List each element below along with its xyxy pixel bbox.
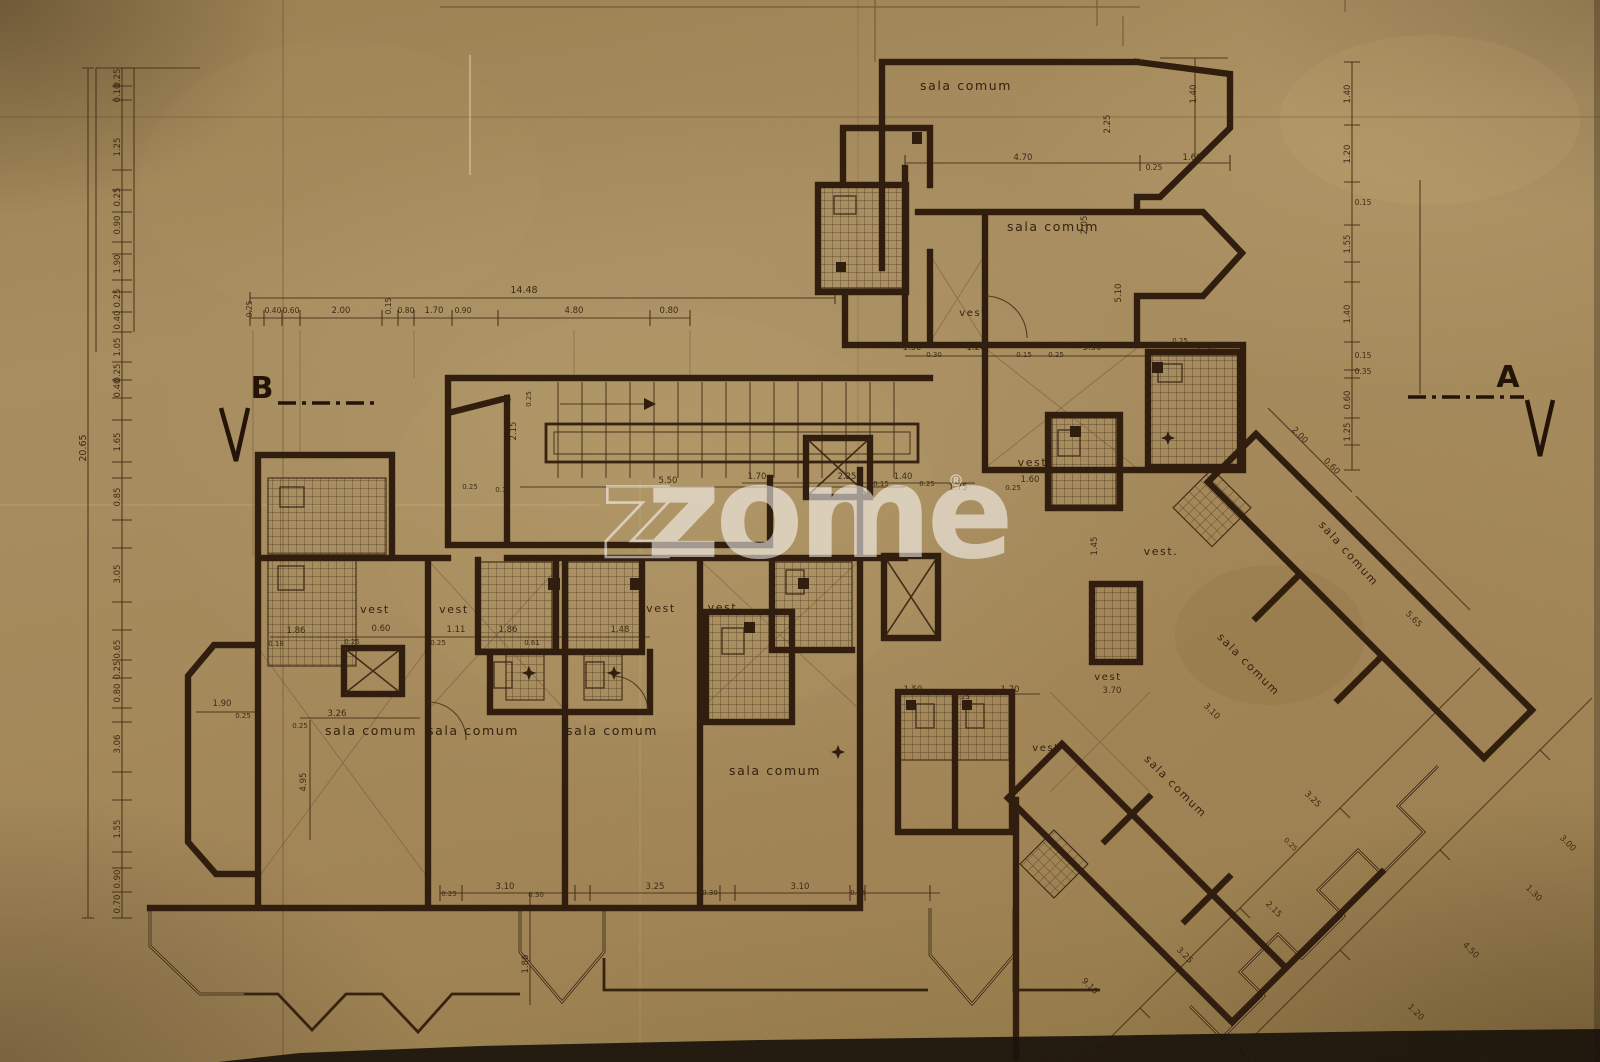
floor-plan-drawing: 0.250.101.250.250.901.900.250.401.050.25…: [0, 0, 1600, 1062]
registered-trademark-icon: ®: [948, 471, 964, 490]
watermark: z zome ®: [600, 439, 1009, 588]
watermark-text: zome: [646, 439, 1009, 588]
scanned-blueprint: 0.250.101.250.250.901.900.250.401.050.25…: [0, 0, 1600, 1062]
